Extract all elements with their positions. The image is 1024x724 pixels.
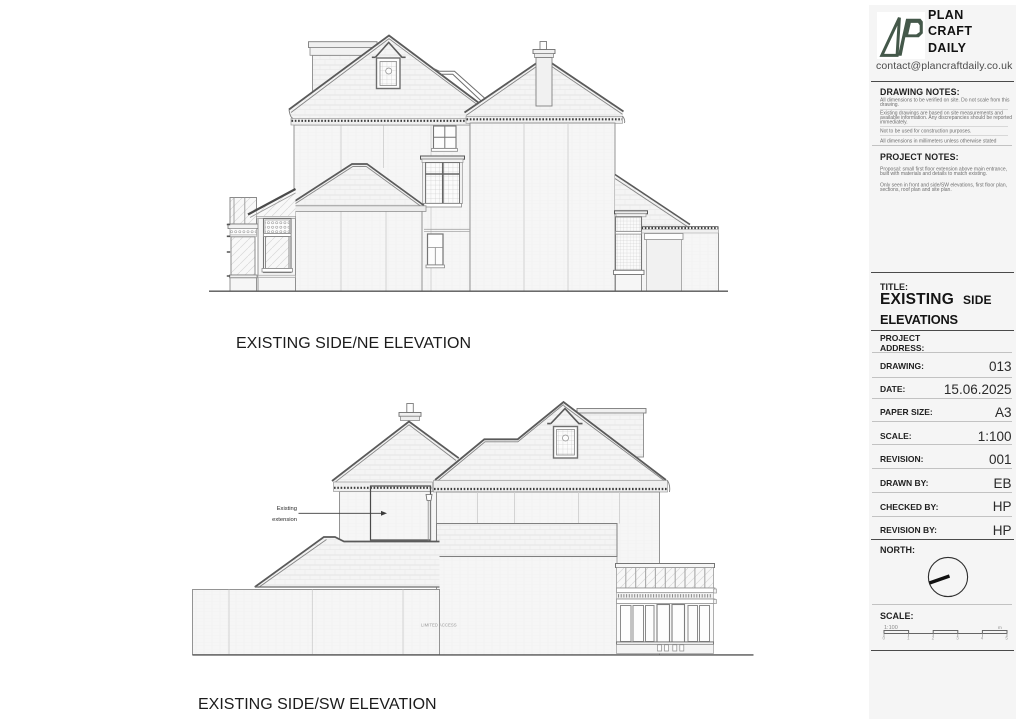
svg-text:LIMITED ACCESS: LIMITED ACCESS xyxy=(421,623,457,628)
svg-text:Existing: Existing xyxy=(277,506,297,512)
svg-text:extension: extension xyxy=(272,517,297,523)
